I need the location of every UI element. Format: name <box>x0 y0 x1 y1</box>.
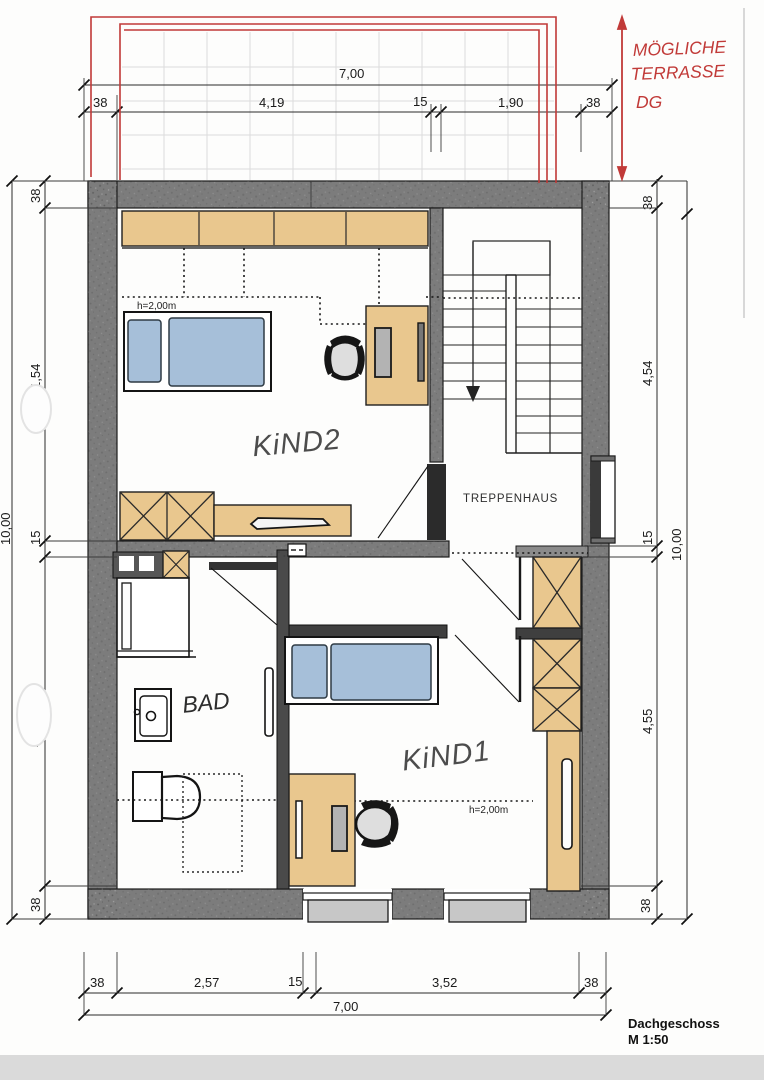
svg-text:15: 15 <box>28 531 43 545</box>
svg-text:Dachgeschoss: Dachgeschoss <box>628 1016 720 1031</box>
svg-text:15: 15 <box>640 531 655 545</box>
svg-text:38: 38 <box>584 975 598 990</box>
svg-text:38: 38 <box>28 189 43 203</box>
svg-text:3,52: 3,52 <box>432 975 457 990</box>
svg-text:7,00: 7,00 <box>333 999 358 1014</box>
svg-text:TERRASSE: TERRASSE <box>630 61 725 84</box>
svg-text:4,54: 4,54 <box>640 361 655 386</box>
svg-text:38: 38 <box>638 899 653 913</box>
svg-text:38: 38 <box>28 898 43 912</box>
svg-text:2,57: 2,57 <box>194 975 219 990</box>
svg-text:7,00: 7,00 <box>339 66 364 81</box>
svg-text:1,90: 1,90 <box>498 95 523 110</box>
svg-text:10,00: 10,00 <box>669 528 684 561</box>
svg-text:10,00: 10,00 <box>0 512 13 545</box>
svg-text:38: 38 <box>90 975 104 990</box>
svg-text:38: 38 <box>93 95 107 110</box>
svg-text:15: 15 <box>413 94 427 109</box>
svg-text:h=2,00m: h=2,00m <box>137 301 176 312</box>
svg-text:DG: DG <box>636 92 662 112</box>
svg-text:4,55: 4,55 <box>640 709 655 734</box>
svg-text:BAD: BAD <box>181 687 231 718</box>
svg-text:TREPPENHAUS: TREPPENHAUS <box>463 493 558 505</box>
svg-text:MÖGLICHE: MÖGLICHE <box>632 37 726 60</box>
svg-text:4,19: 4,19 <box>259 95 284 110</box>
svg-text:h=2,00m: h=2,00m <box>469 805 508 816</box>
svg-text:38: 38 <box>586 95 600 110</box>
svg-text:M 1:50: M 1:50 <box>628 1032 668 1047</box>
svg-text:15: 15 <box>288 974 302 989</box>
